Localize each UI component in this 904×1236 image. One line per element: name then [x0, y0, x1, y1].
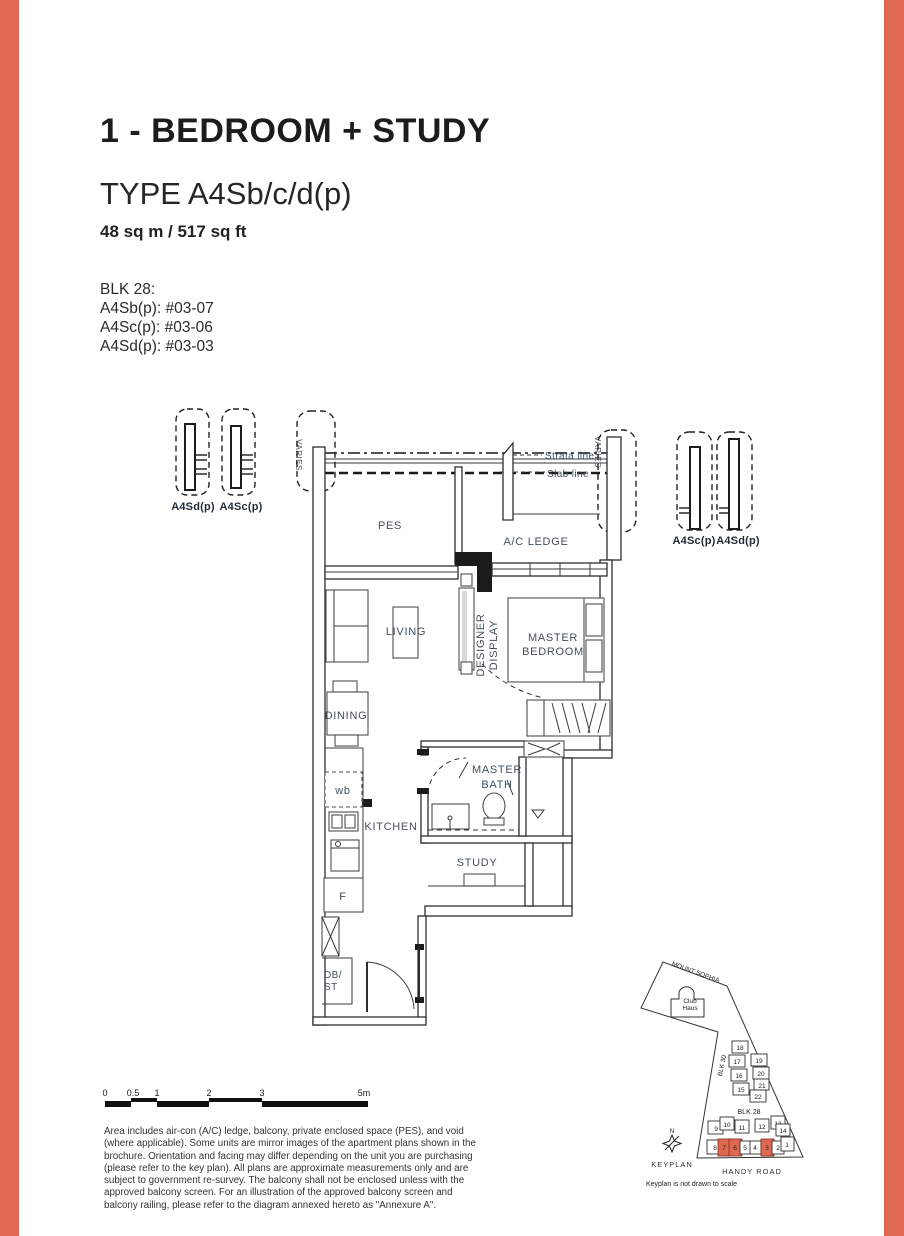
wardrobe: [527, 700, 610, 736]
keyplan-unit: 15: [737, 1087, 745, 1094]
washer-label: wb: [334, 785, 350, 797]
keyplan-unit: 12: [758, 1124, 766, 1131]
blk28-label: BLK 28: [738, 1109, 761, 1116]
keyplan-unit: 2: [776, 1145, 780, 1152]
ac-ledge-label: A/C LEDGE: [504, 536, 569, 548]
screen-icon-a4sc-left: A4Sc(p): [220, 409, 263, 513]
master-bedroom-label-1: MASTER: [528, 632, 578, 644]
slab-line-label: Slab line: [547, 469, 589, 480]
keyplan-unit: 3: [765, 1145, 769, 1152]
north-label: N: [670, 1128, 675, 1135]
vanity-basin: [432, 804, 469, 829]
keyplan-unit: 10: [723, 1122, 731, 1129]
keyplan-title: KEYPLAN: [651, 1160, 693, 1169]
keyplan-unit: 1: [785, 1142, 789, 1149]
screen-option-icons: A4Sd(p) A4Sc(p) A4Sc(p): [171, 409, 760, 547]
keyplan-unit: 21: [758, 1083, 766, 1090]
scale-tick: 0: [102, 1088, 107, 1098]
dining-label: DINING: [325, 710, 368, 722]
keyplan-unit: 5: [743, 1145, 747, 1152]
pes-label: PES: [378, 520, 402, 532]
keyplan-unit: 22: [754, 1094, 762, 1101]
strata-line-label: Strata line: [545, 451, 594, 462]
scale-tick: 1: [154, 1088, 159, 1098]
kitchen-label: KITCHEN: [364, 821, 417, 833]
screen-icon-label: A4Sd(p): [716, 535, 760, 547]
scale-tick: 2: [206, 1088, 211, 1098]
keyplan-unit: 7: [722, 1145, 726, 1152]
road-label-handy-road: HANDY ROAD: [722, 1167, 782, 1176]
floorplan-drawing: Strata line Slab line VARIES VARIES: [0, 0, 904, 1236]
brochure-page: 1 - BEDROOM + STUDY TYPE A4Sb/c/d(p) 48 …: [0, 0, 904, 1236]
varies-label-left: VARIES: [294, 439, 303, 471]
db-st-label-2: ST: [324, 982, 338, 993]
study-desk: [428, 874, 525, 886]
north-compass-icon: N: [663, 1128, 681, 1152]
club-haus-label-2: Haus: [682, 1005, 698, 1012]
living-label: LIVING: [386, 626, 426, 638]
master-bath-label-2: BATH: [481, 779, 512, 791]
screen-icon-a4sc-right: A4Sc(p): [673, 432, 716, 547]
keyplan-unit: 20: [757, 1071, 765, 1078]
scale-bar: 0 0.5 1 2 3 5m: [102, 1088, 370, 1107]
entry-door: [367, 962, 414, 1012]
screen-icon-label: A4Sd(p): [171, 501, 215, 513]
keyplan-unit: 4: [753, 1145, 757, 1152]
screen-icon-label: A4Sc(p): [673, 535, 716, 547]
keyplan-unit: 17: [733, 1059, 741, 1066]
sofa: [326, 590, 368, 662]
kitchen-sink: [329, 812, 358, 831]
vent-box: [524, 741, 564, 757]
keyplan-note: Keyplan is not drawn to scale: [646, 1181, 737, 1188]
keyplan-unit: 8: [713, 1145, 717, 1152]
fridge-label: F: [339, 891, 346, 903]
master-bedroom-label-2: BEDROOM: [522, 646, 584, 658]
keyplan-unit: 9: [714, 1126, 718, 1133]
shower-drain: [532, 810, 544, 818]
study-label: STUDY: [457, 857, 498, 869]
club-haus-label-1: Club: [683, 998, 697, 1005]
scale-tick: 0.5: [127, 1088, 140, 1098]
shoe-cabinet: [322, 917, 339, 956]
designer-display-label-2: DISPLAY: [488, 620, 500, 671]
keyplan: Club Haus MOUNT SOPHIA BLK 30 BLK 28 18 …: [641, 961, 803, 1188]
designer-display-cabinet: [459, 574, 474, 674]
screen-icon-a4sd-left: A4Sd(p): [171, 409, 215, 513]
scale-tick: 3: [259, 1088, 264, 1098]
disclaimer-text: Area includes air-con (A/C) ledge, balco…: [104, 1126, 482, 1212]
keyplan-unit: 18: [736, 1045, 744, 1052]
keyplan-unit: 14: [779, 1128, 787, 1135]
keyplan-unit: 6: [733, 1145, 737, 1152]
screen-icon-a4sd-right: A4Sd(p): [716, 432, 760, 547]
db-st-label-1: DB/: [324, 970, 342, 981]
designer-display-label-1: DESIGNER: [475, 613, 487, 676]
keyplan-unit: 19: [755, 1058, 763, 1065]
toilet: [483, 793, 505, 825]
varies-label-right: VARIES: [593, 436, 602, 468]
scale-tick: 5m: [358, 1088, 371, 1098]
cooktop: [331, 840, 359, 871]
screen-icon-label: A4Sc(p): [220, 501, 263, 513]
master-bath-label-1: MASTER: [472, 764, 522, 776]
db-st-closet: [322, 958, 352, 1004]
keyplan-unit: 11: [739, 1125, 746, 1132]
keyplan-unit: 16: [735, 1073, 743, 1080]
